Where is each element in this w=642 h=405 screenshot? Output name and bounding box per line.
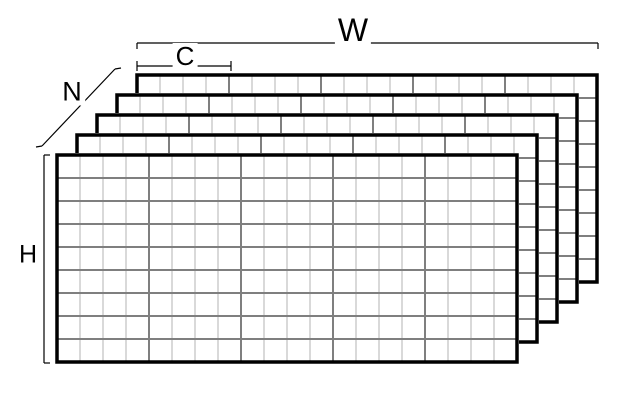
height-dimension-label: H: [16, 243, 40, 268]
width-dimension-label: W: [335, 14, 371, 46]
tensor-diagram: W C N H: [0, 0, 642, 405]
tensor-plane-0: [55, 153, 519, 364]
batch-dimension-label: N: [59, 79, 85, 106]
channels-dimension-label: C: [173, 43, 198, 69]
h-dimension-bracket: [44, 155, 50, 363]
tensor-canvas: [0, 0, 642, 405]
